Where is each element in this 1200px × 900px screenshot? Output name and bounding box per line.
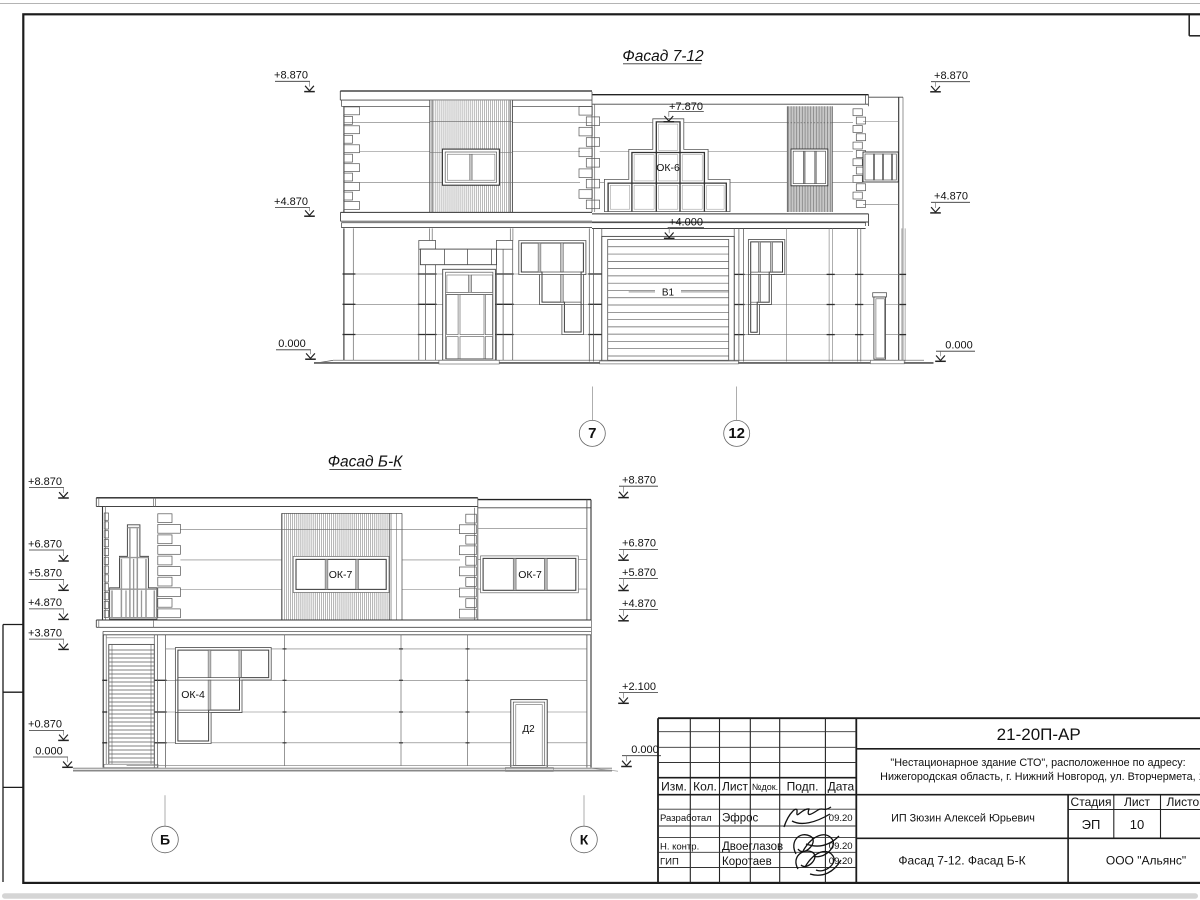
svg-text:+6.870: +6.870 — [28, 538, 62, 550]
svg-text:ОК-4: ОК-4 — [181, 689, 205, 701]
svg-text:+4.870: +4.870 — [622, 598, 656, 610]
svg-text:+5.870: +5.870 — [622, 567, 656, 579]
svg-text:0.000: 0.000 — [278, 338, 306, 350]
svg-text:+4.870: +4.870 — [934, 191, 968, 203]
svg-text:Н. контр.: Н. контр. — [660, 841, 699, 852]
svg-text:ИП Зюзин Алексей Юрьевич: ИП Зюзин Алексей Юрьевич — [891, 813, 1035, 825]
svg-text:7: 7 — [588, 425, 596, 442]
svg-text:09.20: 09.20 — [829, 813, 853, 824]
svg-text:Коротаев: Коротаев — [722, 856, 772, 868]
svg-text:+4.000: +4.000 — [669, 216, 703, 228]
svg-text:Разработал: Разработал — [660, 813, 712, 824]
svg-text:Нижегородская область, г. Нижн: Нижегородская область, г. Нижний Новгоро… — [880, 771, 1200, 783]
svg-text:+3.870: +3.870 — [28, 627, 62, 639]
svg-text:+8.870: +8.870 — [934, 70, 968, 82]
svg-text:Б: Б — [160, 831, 170, 847]
svg-text:+7.870: +7.870 — [669, 101, 703, 113]
svg-text:Лист: Лист — [1124, 795, 1151, 809]
svg-text:ООО "Альянс": ООО "Альянс" — [1106, 854, 1186, 868]
svg-text:ОК-6: ОК-6 — [656, 162, 680, 174]
svg-text:К: К — [580, 831, 589, 847]
svg-text:10: 10 — [1130, 817, 1144, 832]
svg-text:Листов: Листов — [1167, 795, 1200, 809]
svg-text:21-20П-АР: 21-20П-АР — [997, 725, 1081, 744]
svg-text:+6.870: +6.870 — [622, 538, 656, 550]
svg-text:Подп.: Подп. — [787, 780, 819, 794]
svg-text:"Нестационарное здание СТО", р: "Нестационарное здание СТО", расположенн… — [890, 757, 1185, 769]
svg-text:№док.: №док. — [752, 782, 778, 792]
svg-text:Эфрос: Эфрос — [722, 813, 759, 825]
svg-text:+5.870: +5.870 — [28, 568, 62, 580]
svg-text:ОК-7: ОК-7 — [329, 569, 353, 581]
svg-text:Дата: Дата — [828, 780, 855, 794]
svg-text:Фасад Б-К: Фасад Б-К — [328, 454, 403, 471]
svg-text:0.000: 0.000 — [945, 340, 973, 352]
svg-text:+4.870: +4.870 — [274, 196, 308, 208]
svg-text:+2.100: +2.100 — [622, 681, 656, 693]
svg-text:0.000: 0.000 — [35, 745, 63, 757]
svg-text:ЭП: ЭП — [1082, 817, 1101, 832]
svg-text:Изм.: Изм. — [661, 780, 687, 794]
svg-text:Стадия: Стадия — [1071, 795, 1112, 809]
svg-text:Лист: Лист — [722, 780, 749, 794]
svg-text:Двоеглазов: Двоеглазов — [722, 841, 783, 853]
svg-text:ОК-7: ОК-7 — [518, 569, 542, 581]
svg-text:12: 12 — [728, 425, 745, 442]
svg-text:Фасад 7-12: Фасад 7-12 — [622, 48, 704, 65]
svg-text:0.000: 0.000 — [631, 744, 659, 756]
svg-text:+4.870: +4.870 — [28, 597, 62, 609]
svg-text:+0.870: +0.870 — [28, 719, 62, 731]
svg-text:+8.870: +8.870 — [622, 475, 656, 487]
svg-text:+8.870: +8.870 — [28, 476, 62, 488]
svg-text:ГИП: ГИП — [660, 856, 679, 867]
svg-text:+8.870: +8.870 — [274, 70, 308, 82]
svg-text:В1: В1 — [662, 288, 675, 299]
svg-text:Кол.: Кол. — [693, 780, 717, 794]
svg-text:Фасад 7-12. Фасад Б-К: Фасад 7-12. Фасад Б-К — [898, 854, 1025, 868]
svg-text:Д2: Д2 — [522, 724, 535, 735]
